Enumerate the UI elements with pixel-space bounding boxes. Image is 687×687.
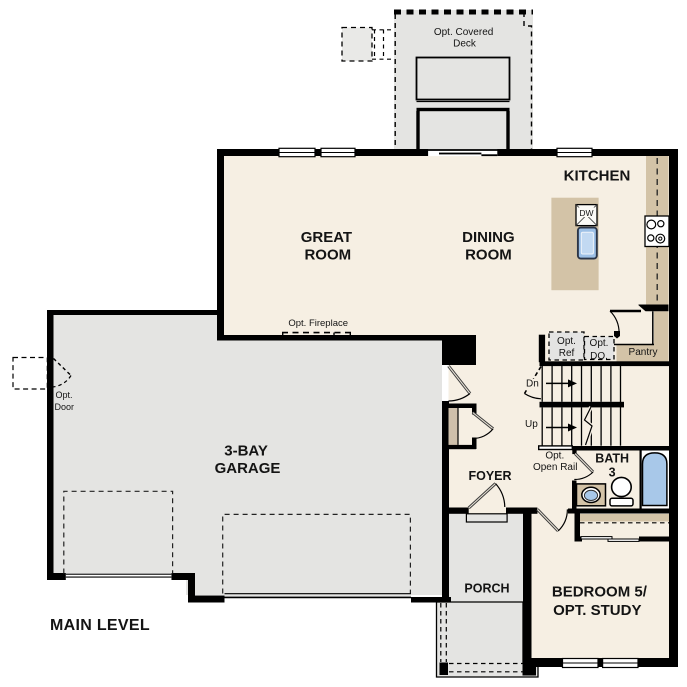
svg-text:Dn: Dn bbox=[526, 379, 539, 390]
svg-text:Opt.: Opt. bbox=[545, 451, 564, 462]
svg-text:PORCH: PORCH bbox=[464, 582, 509, 596]
svg-text:FOYER: FOYER bbox=[468, 469, 511, 483]
svg-text:MAIN LEVEL: MAIN LEVEL bbox=[50, 617, 150, 634]
svg-text:BEDROOM 5/: BEDROOM 5/ bbox=[552, 584, 648, 601]
svg-text:Opt.: Opt. bbox=[557, 336, 576, 347]
svg-text:Up: Up bbox=[525, 419, 538, 430]
svg-text:DINING: DINING bbox=[462, 229, 515, 246]
svg-text:Pantry: Pantry bbox=[629, 347, 658, 358]
svg-text:GREAT: GREAT bbox=[301, 229, 352, 246]
svg-text:OPT. STUDY: OPT. STUDY bbox=[553, 602, 641, 619]
svg-text:Opt.: Opt. bbox=[590, 338, 609, 349]
svg-text:Opt.: Opt. bbox=[56, 390, 73, 400]
svg-text:BATH: BATH bbox=[595, 452, 629, 466]
svg-text:3: 3 bbox=[609, 466, 616, 480]
svg-text:Door: Door bbox=[55, 402, 75, 412]
svg-text:GARAGE: GARAGE bbox=[215, 460, 281, 477]
svg-text:Deck: Deck bbox=[453, 38, 477, 49]
svg-text:3-BAY: 3-BAY bbox=[224, 443, 268, 460]
svg-text:Opt. Fireplace: Opt. Fireplace bbox=[288, 318, 348, 329]
svg-text:Open Rail: Open Rail bbox=[533, 462, 577, 473]
svg-text:ROOM: ROOM bbox=[304, 247, 351, 264]
svg-text:ROOM: ROOM bbox=[465, 247, 512, 264]
svg-text:Opt. Covered: Opt. Covered bbox=[434, 27, 493, 38]
svg-text:DO.: DO. bbox=[590, 351, 608, 362]
svg-text:Ref: Ref bbox=[559, 348, 575, 359]
svg-text:DW: DW bbox=[579, 208, 593, 218]
svg-text:KITCHEN: KITCHEN bbox=[564, 168, 631, 185]
